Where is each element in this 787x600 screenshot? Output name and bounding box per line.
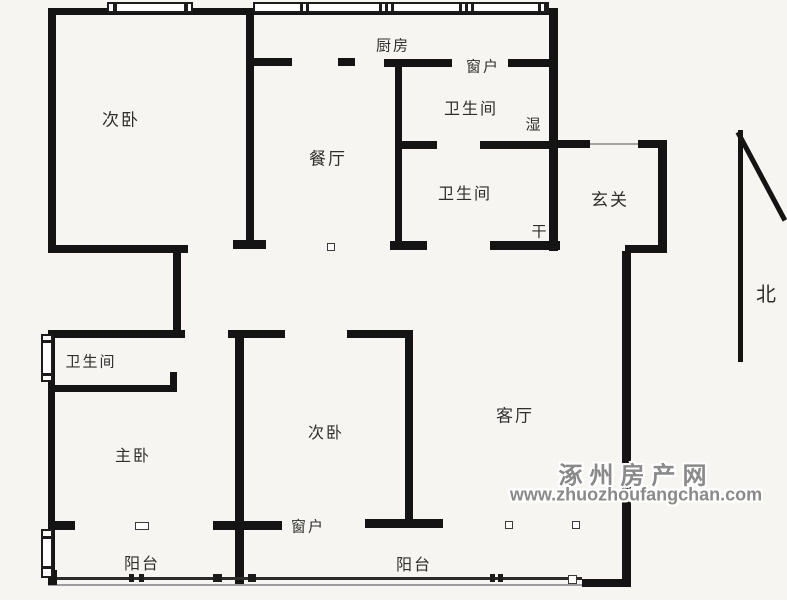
railing-tick [213, 574, 222, 582]
railing-tick [248, 574, 256, 582]
window-tick [42, 566, 52, 569]
room-label-bedroom-middle: 次卧 [308, 426, 344, 442]
wall-bath-divider-2 [480, 141, 549, 149]
wall-bedroom2-right [405, 330, 413, 526]
balcony-railing-bottom-line [48, 584, 582, 586]
wall-y245-a [390, 241, 427, 250]
wall-kitchen-2 [338, 58, 355, 66]
door-symbol-master-balcony [135, 522, 149, 530]
railing-end-square [568, 575, 577, 584]
window-tick [306, 3, 309, 12]
room-label-dry-zone: 干 [531, 225, 548, 240]
wall-bedroom1-bottom [48, 245, 188, 253]
wall-dining-cap [233, 240, 266, 249]
wall-y330-a [48, 330, 185, 338]
wall-foyer-right [658, 140, 667, 253]
room-label-living-room: 客厅 [496, 408, 534, 425]
window-tick [465, 3, 468, 12]
railing-tick [129, 574, 134, 582]
window-tick [113, 3, 117, 12]
wall-living-right [622, 251, 631, 587]
wall-dining-left [246, 10, 254, 241]
room-label-dining: 餐厅 [309, 151, 347, 168]
railing-tick [139, 574, 144, 582]
room-label-bathroom-upper: 卫生间 [444, 102, 498, 118]
wall-y245-b [490, 241, 560, 250]
wall-y330-c [347, 330, 413, 338]
window-tick [391, 3, 394, 12]
north-label: 北 [756, 285, 778, 305]
wall-bath-divider-1 [402, 141, 437, 149]
room-label-master-bedroom: 主卧 [115, 449, 151, 465]
wall-balcony-right-end [582, 579, 628, 587]
wall-bathrooms-left [395, 62, 402, 248]
north-arrow-icon [738, 130, 743, 362]
room-label-foyer: 玄关 [591, 192, 629, 209]
room-label-kitchen: 厨房 [376, 39, 410, 54]
wall-corridor-left [173, 251, 181, 338]
window-tick [544, 3, 547, 12]
wall-foyer-top-1 [558, 140, 590, 148]
window-tick [42, 373, 52, 376]
window-tick [471, 3, 474, 12]
window-tick [538, 3, 541, 12]
wall-kitchen-4 [508, 59, 549, 67]
door-symbol-living-2 [572, 521, 580, 529]
wall-bedroom2-bottom-right [365, 519, 443, 528]
room-label-bedroom-top-left: 次卧 [102, 112, 140, 129]
wall-bedroom2-bottom-left [213, 521, 282, 530]
railing-tick [490, 574, 495, 582]
window-tick [385, 3, 388, 12]
wall-bath-master-stub [170, 372, 177, 387]
wall-left-upper [48, 8, 56, 253]
window-tick [42, 340, 52, 343]
wall-foyer-step [625, 245, 667, 253]
room-label-balcony-right: 阳台 [396, 558, 432, 574]
foyer-entry-door-line [590, 143, 638, 145]
railing-tick [498, 574, 503, 582]
window-tick [459, 3, 462, 12]
watermark-site-url: www.zhuozhoufangchan.com [510, 485, 762, 506]
window-tick [184, 3, 188, 12]
wall-bath-master-bottom [50, 385, 177, 392]
wall-mid-divider [235, 330, 244, 585]
annotation-window-bottom: 窗户 [291, 520, 325, 535]
wall-kitchen-1 [252, 58, 292, 66]
room-label-bathroom-master: 卫生间 [65, 355, 116, 370]
room-label-bathroom-lower: 卫生间 [438, 187, 492, 203]
annotation-window-top: 窗户 [466, 60, 500, 75]
window-tick [300, 3, 303, 12]
room-label-balcony-left: 阳台 [124, 557, 160, 573]
window-tick [42, 536, 52, 539]
floor-plan: 次卧 厨房 窗户 卫生间 湿 餐厅 卫生间 玄关 干 北 卫生间 主卧 次卧 客… [0, 0, 787, 600]
door-pivot-square [327, 243, 335, 251]
wall-bath-block-right [549, 8, 558, 251]
window-tick [379, 3, 382, 12]
window-symbol-top-1 [107, 2, 193, 13]
window-symbol-top-2 [253, 2, 549, 13]
room-label-wet-zone: 湿 [525, 118, 542, 133]
north-arrow-diagonal [736, 131, 787, 222]
door-symbol-living-1 [505, 521, 513, 529]
